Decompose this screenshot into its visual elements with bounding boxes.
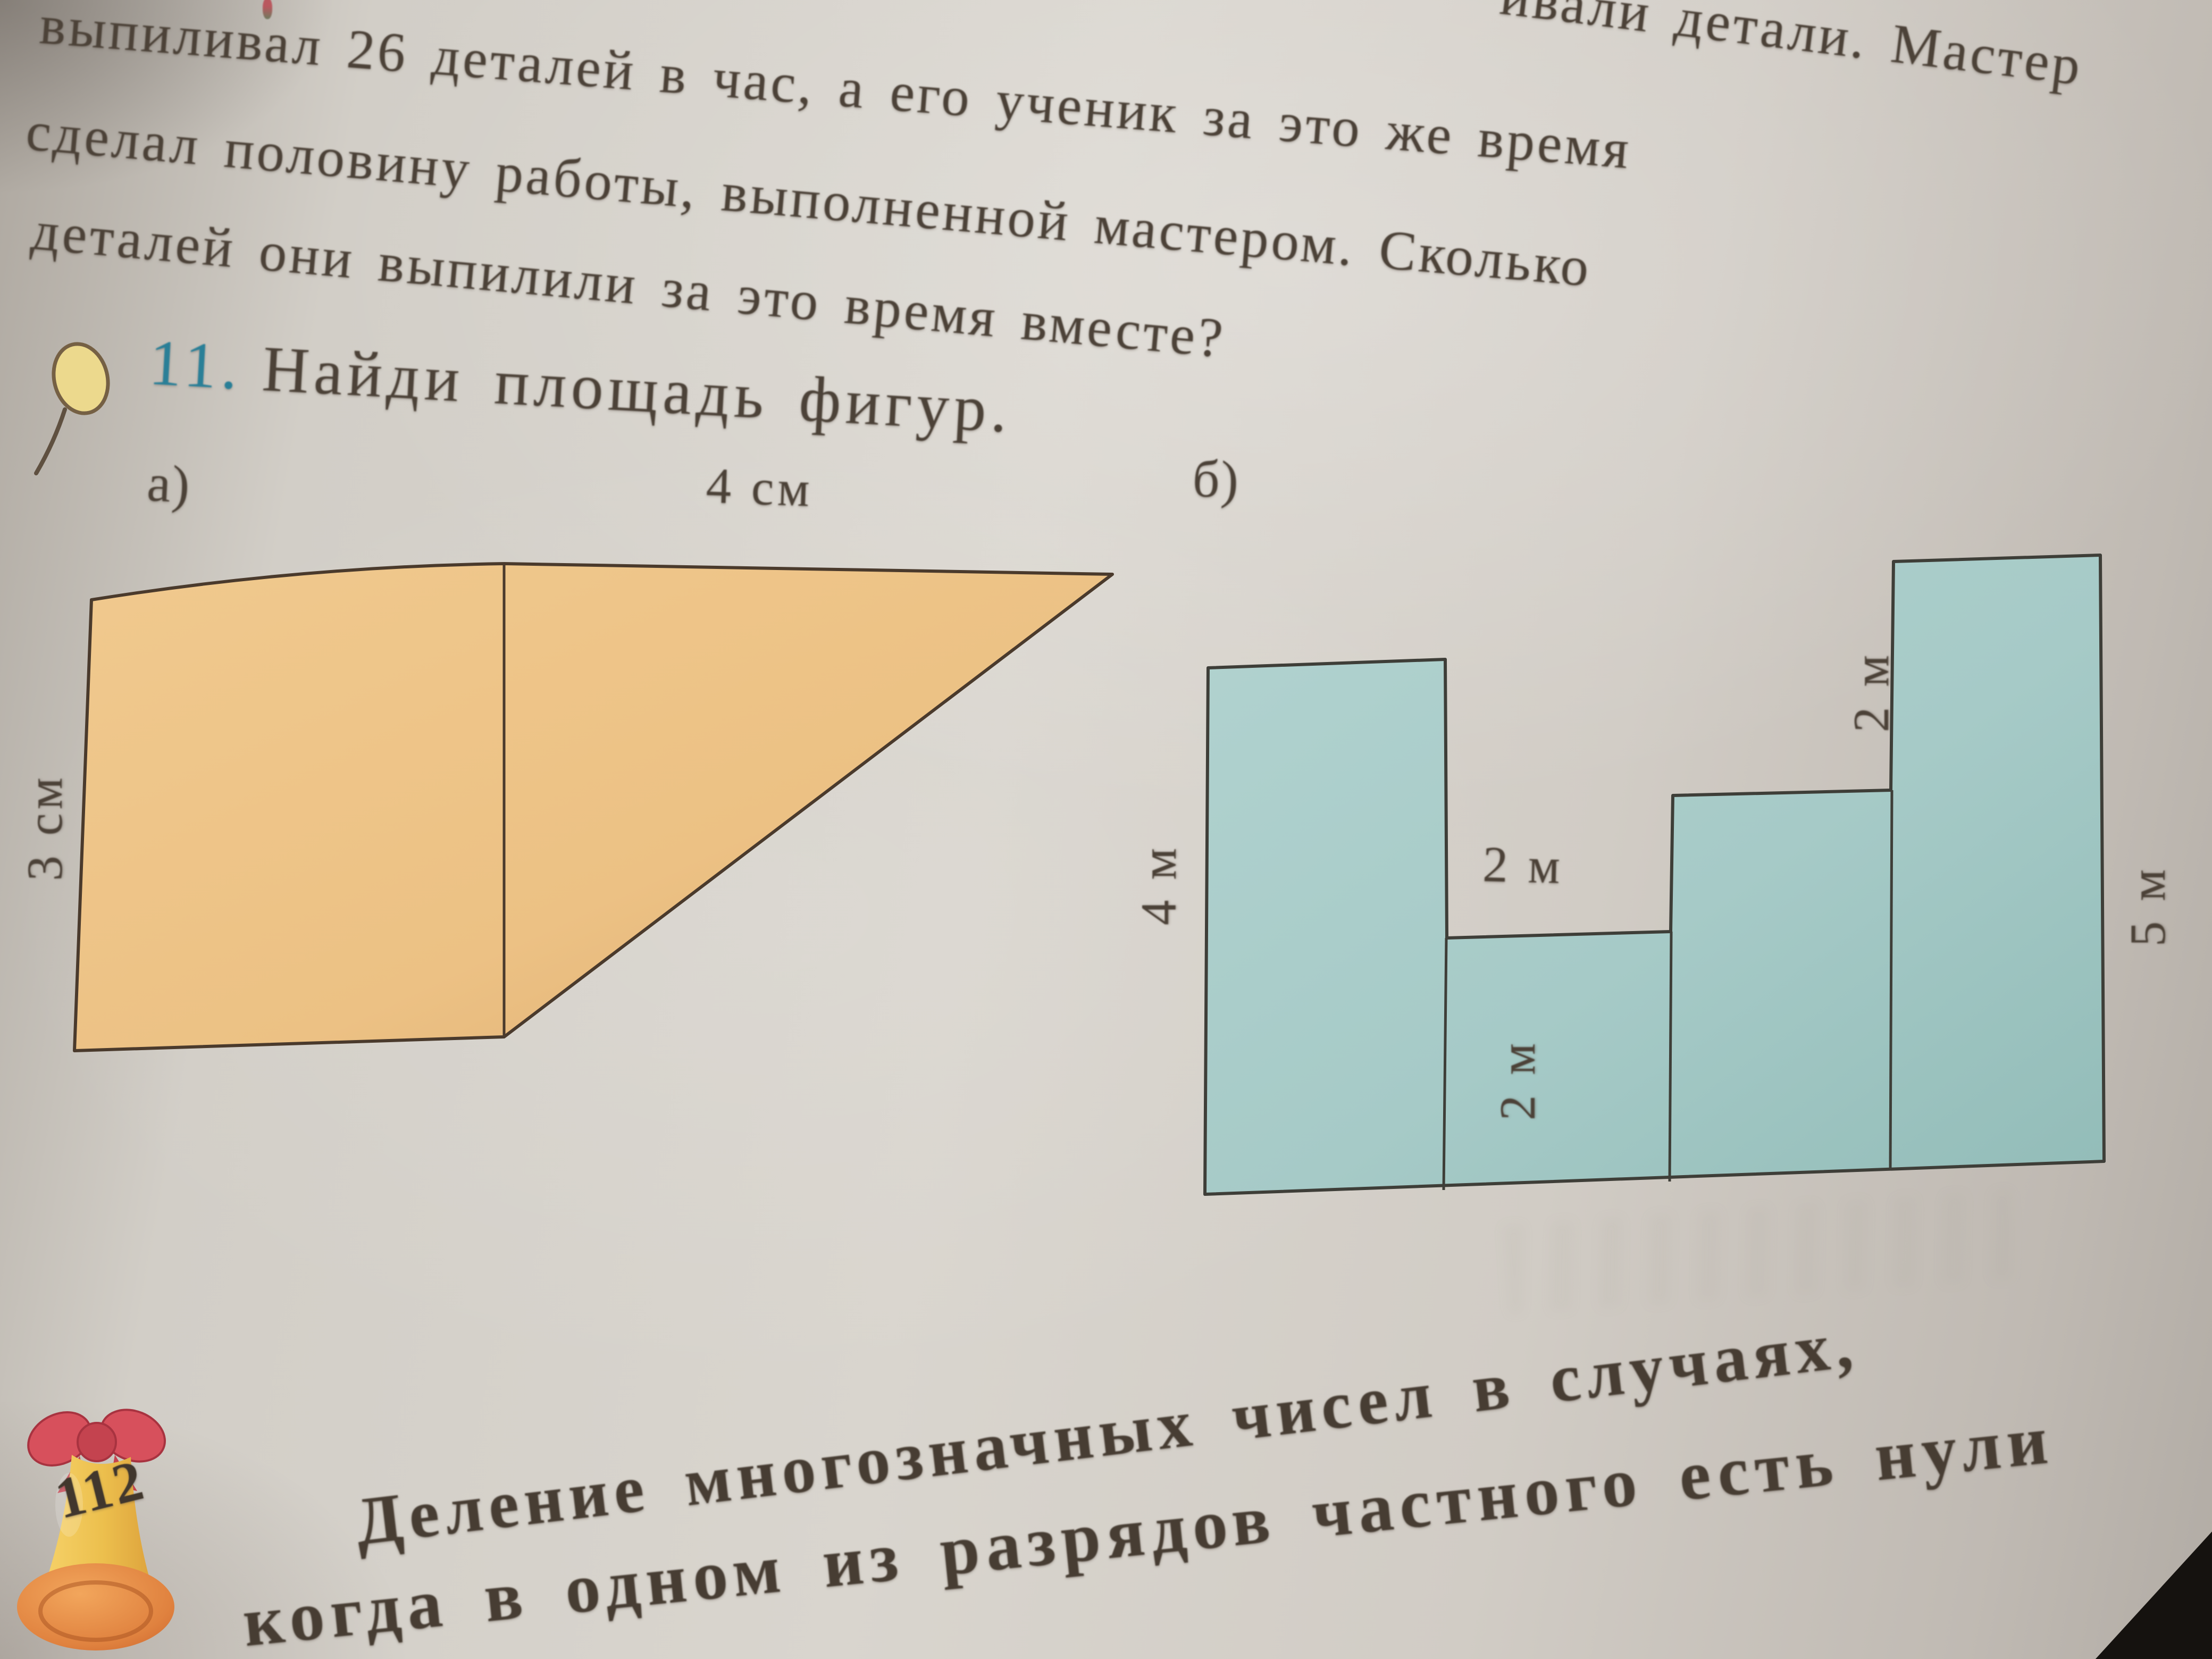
figure-a-width-label: 4 см [705,456,814,518]
task-number: 11. [147,326,244,404]
figure-b-middle-height-label: 2 м [1488,984,1548,1176]
figure-b-step-height-label: 2 м [1842,596,1901,787]
figure-b-label: б) [1192,448,1241,510]
figure-b [1205,555,2104,1194]
figure-b-left-height-label: 4 м [1129,789,1189,981]
figure-a [74,564,1112,1051]
figure-b-shape [1205,555,2104,1194]
textbook-page-photo: ивали детали. Мастер выпиливал 26 детале… [0,0,2212,1659]
figure-b-right-height-label: 5 м [2118,810,2178,1002]
figure-b-divider-2 [1670,932,1671,1182]
figure-a-label: а) [146,452,192,515]
magnifier-icon [36,338,115,473]
figure-a-shape [74,564,1112,1051]
figure-b-middle-width-label: 2 м [1482,835,1564,895]
figure-b-divider-3 [1890,790,1892,1170]
bell-icon [17,1401,174,1650]
photo-edge-speck [263,0,272,19]
figure-a-height-label: 3 см [15,732,75,923]
